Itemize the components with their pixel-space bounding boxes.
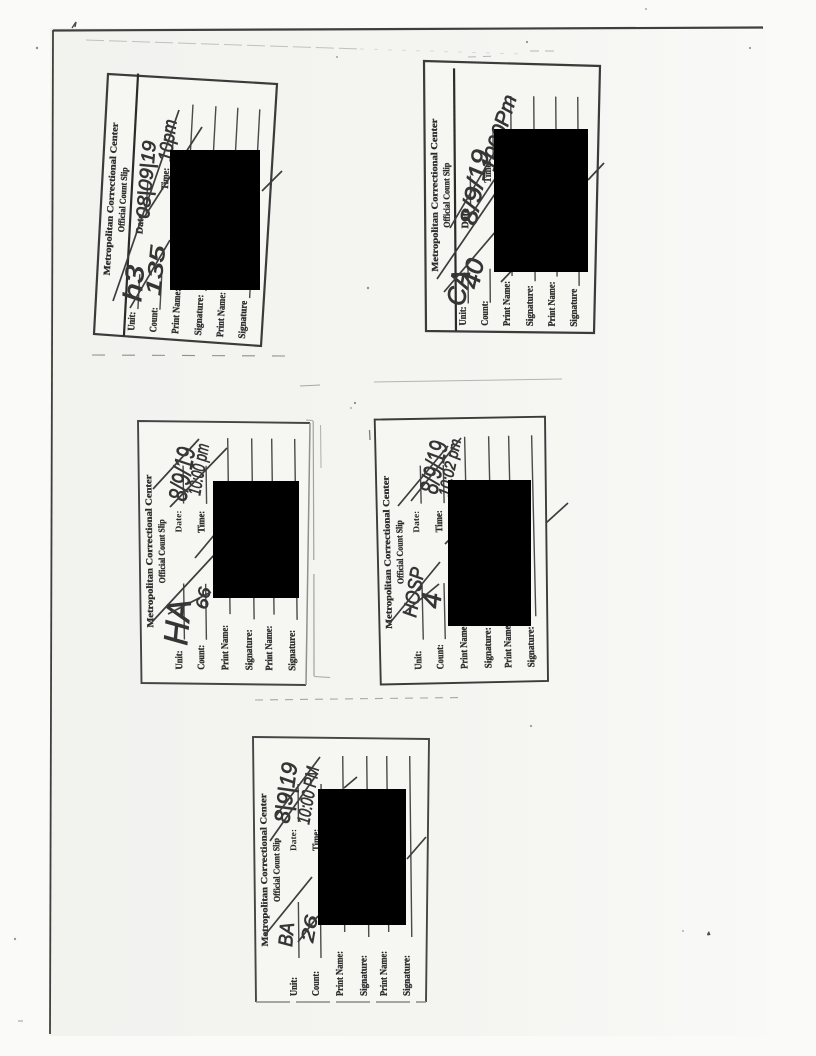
svg-text:Signature:: Signature:	[244, 629, 256, 670]
svg-text:Print Name:: Print Name:	[378, 951, 390, 996]
svg-text:Count:: Count:	[311, 971, 322, 996]
svg-text:Count:: Count:	[480, 301, 491, 326]
svg-text:Signature:: Signature:	[483, 627, 495, 668]
svg-text:Unit:: Unit:	[289, 977, 300, 996]
svg-text:Count:: Count:	[196, 645, 207, 670]
svg-text:Signature:: Signature:	[526, 626, 538, 667]
svg-text:Signature: Signature	[237, 300, 250, 339]
svg-text:Signature:: Signature:	[287, 630, 299, 671]
svg-text:Metropolitan Correctional Cent: Metropolitan Correctional Center	[429, 119, 440, 272]
svg-text:Time:: Time:	[434, 510, 446, 532]
svg-text:Signature: Signature	[569, 288, 580, 327]
svg-text:Official Count Slip: Official Count Slip	[441, 163, 451, 228]
svg-text:Signature:: Signature:	[401, 955, 412, 996]
svg-text:Signature:: Signature:	[193, 294, 206, 336]
svg-text:Signature:: Signature:	[358, 955, 369, 996]
svg-text:Signature:: Signature:	[525, 285, 536, 326]
svg-text:66: 66	[192, 585, 215, 611]
svg-text:Print Name:: Print Name:	[458, 624, 470, 669]
svg-text:Date:: Date:	[411, 511, 422, 533]
svg-text:Print Name:: Print Name:	[264, 626, 276, 671]
svg-text:Print Name:: Print Name:	[502, 623, 514, 668]
svg-text:Unit:: Unit:	[126, 311, 138, 331]
svg-text:Print Name:: Print Name:	[547, 281, 558, 326]
svg-text:Unit:: Unit:	[458, 306, 469, 325]
svg-text:Official Count Slip: Official Count Slip	[394, 520, 405, 584]
svg-text:Official Count Slip: Official Count Slip	[271, 838, 282, 902]
svg-text:Print Name:: Print Name:	[502, 281, 513, 326]
svg-text:Unit:: Unit:	[413, 651, 424, 670]
svg-text:Metropolitan Correctional Cent: Metropolitan Correctional Center	[258, 794, 270, 947]
svg-text:Metropolitan Correctional Cent: Metropolitan Correctional Center	[143, 475, 155, 628]
svg-text:Unit:: Unit:	[174, 650, 185, 669]
svg-text:Print Name:: Print Name:	[220, 625, 232, 670]
svg-text:Date:: Date:	[173, 510, 183, 532]
svg-text:Official Count Slip: Official Count Slip	[156, 519, 167, 583]
svg-text:Print Name:: Print Name:	[334, 951, 346, 996]
svg-text:Count:: Count:	[148, 307, 160, 333]
svg-text:Date:: Date:	[288, 829, 298, 851]
svg-text:BA: BA	[275, 922, 299, 948]
svg-text:Time:: Time:	[196, 511, 207, 533]
svg-text:Count:: Count:	[435, 644, 447, 669]
